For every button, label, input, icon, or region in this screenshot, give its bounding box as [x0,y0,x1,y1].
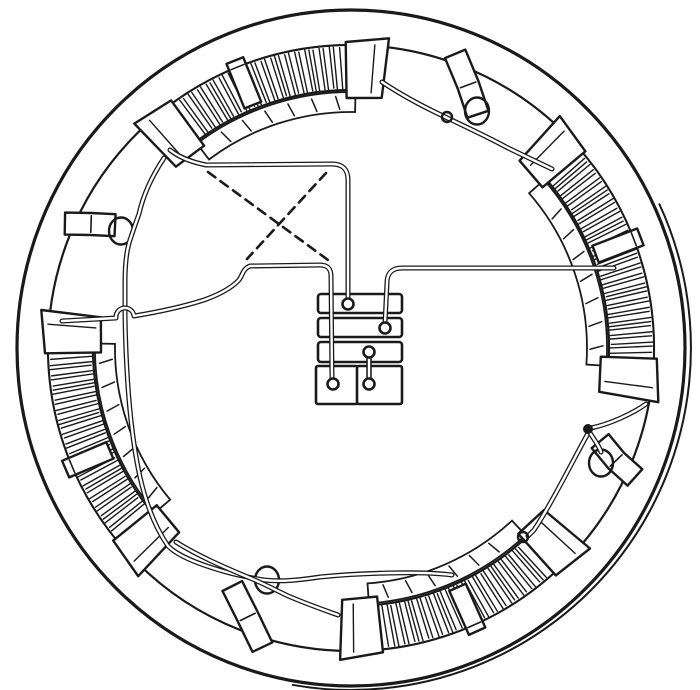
field-coil-bottom [340,510,590,660]
field-coil-left [41,310,179,576]
dashed-cross-connections [208,172,328,260]
cable-clip-upper-right-strap [445,50,488,118]
field-coil-top-end-cap [346,38,389,98]
field-coil-left-end-cap [41,310,101,353]
field-coil-right-winding-hatch [609,352,651,353]
terminal-4 [328,379,339,390]
terminal-1 [343,299,354,310]
dashed-cross-link-2 [247,173,326,259]
field-coil-right-end-cap [599,357,658,403]
wire-top-coil-left-to-terminal-1 [170,150,348,299]
terminal-2 [380,323,391,334]
field-winding-diagram [0,0,700,690]
terminal-5 [364,379,375,390]
cable-clip-left [65,213,133,245]
illustration-stage [0,0,700,690]
terminal-3 [364,347,375,358]
cable-clip-left-strap-bend [91,216,92,232]
field-coil-bottom-end-cap [340,597,383,660]
wire-top-coil-left-to-terminal-1-core [170,150,348,299]
junction-dot-right [584,425,592,433]
dashed-cross-link-1 [208,172,328,260]
